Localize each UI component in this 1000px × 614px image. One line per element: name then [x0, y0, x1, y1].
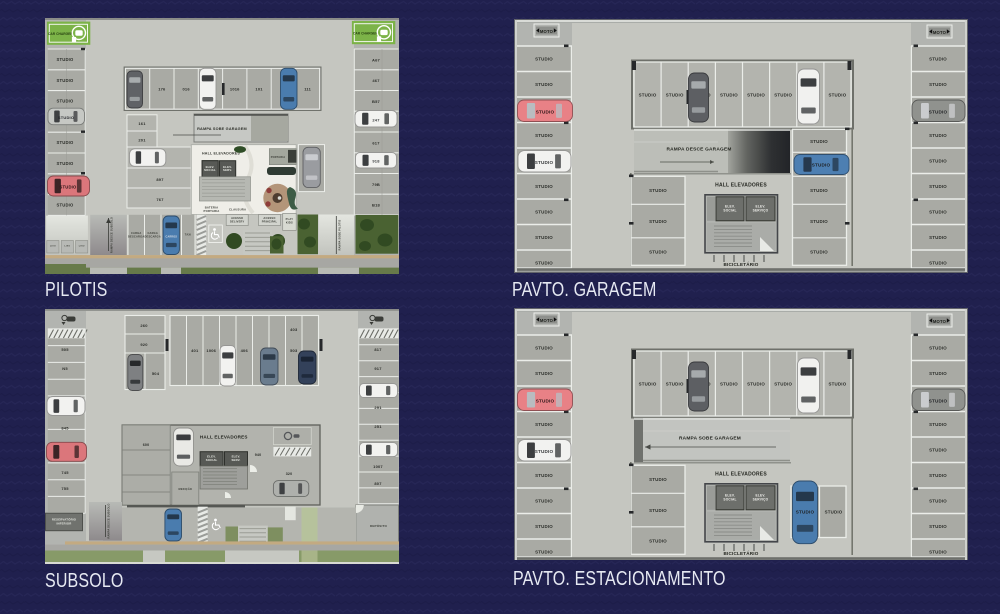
svg-text:STUDIO: STUDIO: [929, 260, 947, 265]
svg-text:SOCIAL: SOCIAL: [723, 209, 736, 213]
svg-text:STUDIO: STUDIO: [535, 235, 553, 240]
svg-text:STUDIO: STUDIO: [649, 508, 667, 513]
svg-text:HALL ELEVADORES: HALL ELEVADORES: [202, 152, 240, 156]
svg-text:STUDIO: STUDIO: [929, 422, 947, 427]
svg-text:DELIVERY: DELIVERY: [230, 219, 245, 223]
svg-text:920: 920: [140, 342, 148, 347]
svg-text:STUDIO: STUDIO: [774, 93, 792, 98]
svg-text:PLAY: PLAY: [286, 217, 294, 221]
svg-text:B57: B57: [372, 99, 381, 104]
svg-text:ACESSO: ACESSO: [263, 216, 275, 220]
svg-text:504: 504: [152, 371, 160, 376]
svg-text:STUDIO: STUDIO: [929, 524, 947, 529]
svg-text:940: 940: [255, 453, 262, 457]
svg-text:1007: 1007: [373, 464, 383, 469]
svg-text:STUDIO: STUDIO: [649, 250, 667, 255]
svg-text:STUDIO: STUDIO: [536, 399, 555, 404]
svg-text:016: 016: [183, 87, 191, 92]
svg-text:755: 755: [61, 486, 69, 491]
svg-text:STUDIO: STUDIO: [639, 93, 657, 98]
svg-text:600: 600: [143, 443, 150, 447]
svg-text:STUDIO: STUDIO: [747, 93, 765, 98]
svg-text:STUDIO: STUDIO: [535, 133, 553, 138]
svg-text:406: 406: [241, 348, 249, 353]
svg-text:STUDIO: STUDIO: [536, 110, 555, 115]
svg-text:STUDIO: STUDIO: [535, 345, 553, 350]
svg-text:STUDIO: STUDIO: [59, 185, 77, 190]
svg-text:251: 251: [374, 424, 382, 429]
svg-text:CAR CHARGER: CAR CHARGER: [48, 32, 73, 36]
svg-text:320: 320: [286, 472, 293, 476]
svg-text:INFERIOR: INFERIOR: [57, 522, 72, 526]
svg-text:STUDIO: STUDIO: [796, 510, 815, 515]
svg-text:201: 201: [138, 138, 146, 143]
svg-text:STUDIO: STUDIO: [929, 549, 947, 554]
svg-text:STUDIO: STUDIO: [666, 382, 684, 387]
svg-text:DESCARGA: DESCARGA: [128, 234, 144, 238]
svg-text:STUDIO: STUDIO: [774, 382, 792, 387]
svg-text:DEPÓSITO: DEPÓSITO: [370, 523, 388, 528]
svg-text:MOTO: MOTO: [540, 318, 554, 323]
svg-text:STUDIO: STUDIO: [929, 447, 947, 452]
svg-text:STUDIO: STUDIO: [535, 549, 553, 554]
svg-text:STUDIO: STUDIO: [929, 209, 947, 214]
svg-text:CARGA: CARGA: [147, 231, 158, 235]
svg-text:STUDIO: STUDIO: [56, 78, 74, 83]
svg-text:SERV.: SERV.: [231, 458, 240, 462]
svg-text:1016: 1016: [230, 87, 240, 92]
svg-text:247: 247: [372, 118, 380, 123]
svg-text:291: 291: [374, 405, 382, 410]
svg-text:RAMPA DESCE SUBSOLO: RAMPA DESCE SUBSOLO: [108, 503, 111, 538]
svg-text:STUDIO: STUDIO: [535, 498, 553, 503]
svg-text:STUDIO: STUDIO: [810, 139, 828, 144]
svg-text:176: 176: [158, 87, 166, 92]
svg-text:BICICLETÁRIO: BICICLETÁRIO: [723, 261, 758, 267]
svg-text:767: 767: [156, 197, 164, 202]
svg-text:STUDIO: STUDIO: [535, 524, 553, 529]
svg-text:STUDIO: STUDIO: [810, 219, 828, 224]
svg-text:STUDIO: STUDIO: [535, 371, 553, 376]
svg-text:N5: N5: [62, 366, 68, 371]
svg-text:B18: B18: [372, 203, 381, 208]
svg-text:STUDIO: STUDIO: [56, 203, 74, 208]
svg-text:STUDIO: STUDIO: [535, 56, 553, 61]
svg-text:STUDIO: STUDIO: [535, 160, 554, 165]
svg-text:STUDIO: STUDIO: [812, 163, 831, 168]
svg-text:807: 807: [374, 481, 382, 486]
svg-text:STUDIO: STUDIO: [535, 449, 554, 454]
svg-text:DESCARGA: DESCARGA: [144, 234, 160, 238]
svg-text:STUDIO: STUDIO: [829, 93, 847, 98]
svg-text:STUDIO: STUDIO: [929, 158, 947, 163]
svg-text:STUDIO: STUDIO: [720, 382, 738, 387]
svg-text:STUDIO: STUDIO: [929, 184, 947, 189]
svg-text:STUDIO: STUDIO: [535, 422, 553, 427]
svg-text:1006: 1006: [206, 348, 216, 353]
svg-text:CARROS: CARROS: [166, 235, 178, 238]
svg-text:MOTO: MOTO: [933, 30, 947, 35]
svg-text:STUDIO: STUDIO: [535, 260, 553, 265]
svg-text:817: 817: [374, 347, 382, 352]
svg-text:845: 845: [61, 426, 69, 431]
svg-text:101: 101: [255, 87, 263, 92]
svg-text:STUDIO: STUDIO: [666, 93, 684, 98]
svg-text:STUDIO: STUDIO: [929, 498, 947, 503]
svg-text:STUDIO: STUDIO: [535, 473, 553, 478]
svg-text:CAR CHARGER: CAR CHARGER: [353, 31, 378, 35]
svg-text:STUDIO: STUDIO: [929, 82, 947, 87]
svg-text:505: 505: [61, 347, 69, 352]
svg-text:617: 617: [372, 140, 380, 145]
svg-text:STUDIO: STUDIO: [929, 345, 947, 350]
svg-text:HALL ELEVADORES: HALL ELEVADORES: [200, 435, 248, 440]
svg-text:897: 897: [156, 177, 164, 182]
svg-text:161: 161: [138, 121, 146, 126]
svg-text:260: 260: [140, 323, 148, 328]
svg-text:STUDIO: STUDIO: [825, 510, 843, 515]
svg-text:918: 918: [372, 159, 380, 164]
svg-text:STUDIO: STUDIO: [649, 219, 667, 224]
svg-text:ACESSO: ACESSO: [231, 216, 243, 220]
svg-text:PRINCIPAL: PRINCIPAL: [262, 219, 278, 223]
svg-text:503: 503: [290, 348, 298, 353]
svg-text:STUDIO: STUDIO: [649, 539, 667, 544]
svg-text:PORTARIA: PORTARIA: [204, 209, 220, 213]
svg-text:SERV.: SERV.: [223, 168, 232, 172]
svg-text:TAXI: TAXI: [185, 233, 192, 237]
svg-text:STUDIO: STUDIO: [929, 235, 947, 240]
svg-text:HALL ELEVADORES: HALL ELEVADORES: [715, 183, 767, 189]
svg-text:STUDIO: STUDIO: [810, 250, 828, 255]
svg-text:LIXO: LIXO: [79, 246, 85, 248]
svg-text:STUDIO: STUDIO: [56, 161, 74, 166]
svg-text:403: 403: [290, 327, 298, 332]
svg-text:401: 401: [191, 348, 199, 353]
svg-text:SOCIAL: SOCIAL: [204, 168, 216, 172]
svg-text:STUDIO: STUDIO: [929, 133, 947, 138]
svg-text:STUDIO: STUDIO: [535, 184, 553, 189]
svg-text:SERVIÇO: SERVIÇO: [753, 498, 769, 502]
svg-text:RAMPA SOBE GARAGEM: RAMPA SOBE GARAGEM: [679, 436, 741, 442]
svg-text:LIXO: LIXO: [64, 246, 70, 248]
svg-text:STUDIO: STUDIO: [829, 382, 847, 387]
svg-text:CLAUSURA: CLAUSURA: [229, 207, 246, 211]
svg-text:745: 745: [61, 470, 69, 475]
svg-text:STUDIO: STUDIO: [58, 115, 74, 120]
svg-text:STUDIO: STUDIO: [535, 209, 553, 214]
svg-text:MOTO: MOTO: [540, 29, 554, 34]
svg-text:BICICLETÁRIO: BICICLETÁRIO: [723, 550, 758, 556]
svg-text:RAMPA SOBE PILOTIS: RAMPA SOBE PILOTIS: [339, 220, 342, 251]
svg-text:A67: A67: [372, 57, 381, 62]
svg-text:STUDIO: STUDIO: [929, 399, 948, 404]
svg-text:STUDIO: STUDIO: [649, 188, 667, 193]
svg-text:PORTARIA: PORTARIA: [271, 156, 285, 159]
svg-text:STUDIO: STUDIO: [929, 473, 947, 478]
svg-text:STUDIO: STUDIO: [810, 188, 828, 193]
svg-text:STUDIO: STUDIO: [747, 382, 765, 387]
svg-text:HALL ELEVADORES: HALL ELEVADORES: [715, 472, 767, 478]
svg-text:MOTO: MOTO: [933, 319, 947, 324]
svg-text:467: 467: [372, 78, 380, 83]
svg-text:CARGA: CARGA: [131, 231, 142, 235]
svg-text:STUDIO: STUDIO: [56, 57, 74, 62]
svg-text:STUDIO: STUDIO: [649, 477, 667, 482]
svg-text:STUDIO: STUDIO: [56, 140, 74, 145]
svg-text:SOCIAL: SOCIAL: [723, 498, 736, 502]
svg-text:SERVIÇO: SERVIÇO: [753, 209, 769, 213]
svg-text:RAMPA DESCE SUBSOLO: RAMPA DESCE SUBSOLO: [110, 217, 114, 253]
svg-text:STUDIO: STUDIO: [56, 99, 74, 104]
svg-text:RAMPA SOBE GARAGEM: RAMPA SOBE GARAGEM: [197, 127, 247, 131]
svg-text:RAMPA DESCE GARAGEM: RAMPA DESCE GARAGEM: [666, 147, 731, 153]
svg-text:LIXO: LIXO: [50, 246, 56, 248]
svg-text:SOCIAL: SOCIAL: [206, 458, 218, 462]
svg-text:STUDIO: STUDIO: [929, 371, 947, 376]
svg-text:STUDIO: STUDIO: [929, 110, 948, 115]
svg-text:KIDS: KIDS: [286, 220, 293, 224]
svg-text:111: 111: [304, 87, 311, 92]
svg-text:STUDIO: STUDIO: [535, 82, 553, 87]
svg-text:79B: 79B: [372, 182, 380, 187]
svg-text:STUDIO: STUDIO: [720, 93, 738, 98]
svg-text:STUDIO: STUDIO: [929, 56, 947, 61]
svg-text:917: 917: [374, 366, 382, 371]
svg-text:STUDIO: STUDIO: [639, 382, 657, 387]
